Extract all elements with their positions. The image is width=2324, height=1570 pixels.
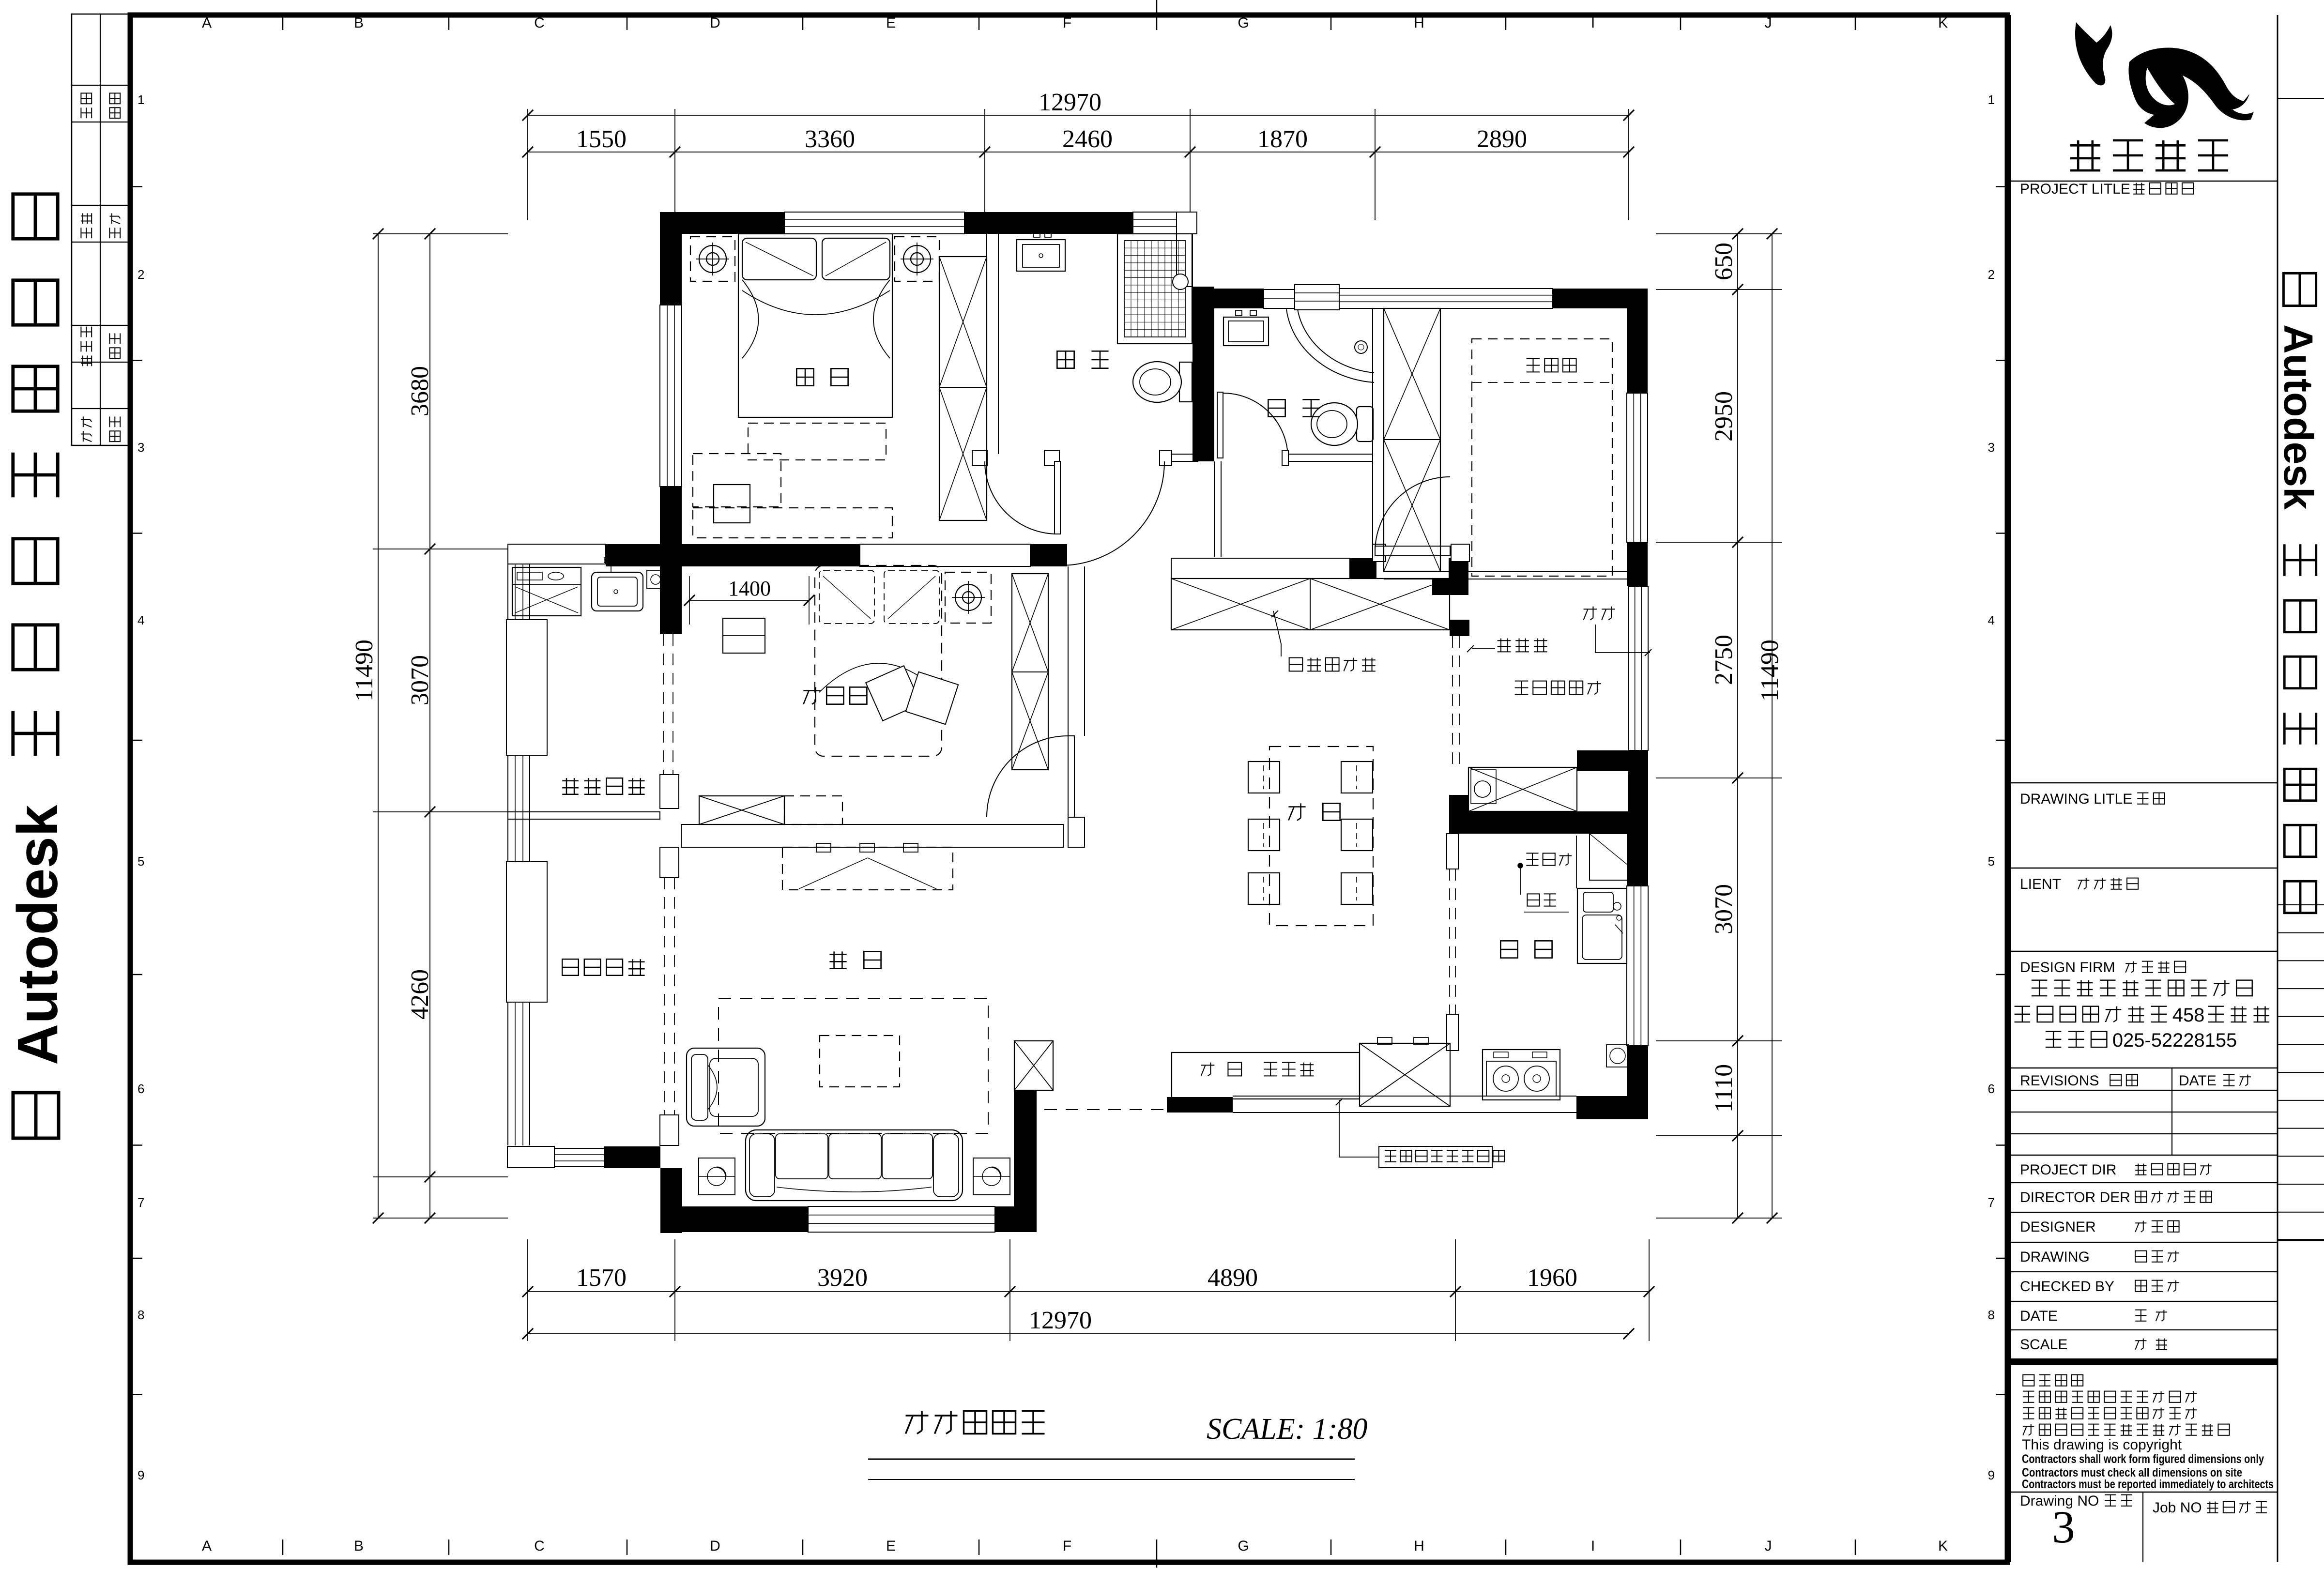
svg-text:1110: 1110 xyxy=(1710,1064,1738,1113)
svg-text:A: A xyxy=(202,15,212,31)
svg-text:Contractors must be reported i: Contractors must be reported immediately… xyxy=(2022,1478,2274,1491)
svg-text:8: 8 xyxy=(138,1308,144,1322)
svg-text:J: J xyxy=(1765,15,1772,31)
svg-text:9: 9 xyxy=(138,1468,144,1482)
svg-text:5: 5 xyxy=(1988,854,1995,869)
svg-text:J: J xyxy=(1765,1538,1772,1554)
svg-text:C: C xyxy=(534,15,545,31)
svg-text:1: 1 xyxy=(1988,92,1995,107)
svg-text:650: 650 xyxy=(1710,243,1738,280)
svg-text:B: B xyxy=(354,1538,364,1554)
svg-text:12970: 12970 xyxy=(1029,1307,1092,1334)
svg-text:Autodesk: Autodesk xyxy=(2276,324,2321,510)
svg-text:This drawing is copyright: This drawing is copyright xyxy=(2022,1437,2182,1453)
svg-text:1570: 1570 xyxy=(576,1264,627,1292)
svg-text:DATE: DATE xyxy=(2020,1308,2058,1324)
svg-text:G: G xyxy=(1238,1538,1249,1554)
svg-text:7: 7 xyxy=(138,1195,144,1210)
svg-text:3360: 3360 xyxy=(805,125,855,153)
svg-text:4260: 4260 xyxy=(406,969,434,1020)
svg-text:PROJECT LITLE: PROJECT LITLE xyxy=(2020,181,2130,197)
svg-text:3680: 3680 xyxy=(406,366,434,416)
svg-text:F: F xyxy=(1063,15,1071,31)
svg-text:DIRECTOR DER: DIRECTOR DER xyxy=(2020,1189,2130,1205)
svg-text:D: D xyxy=(710,1538,720,1554)
svg-text:I: I xyxy=(1591,1538,1595,1554)
svg-text:DATE: DATE xyxy=(2179,1073,2217,1089)
svg-text:E: E xyxy=(886,15,896,31)
svg-text:C: C xyxy=(534,1538,545,1554)
svg-text:1400: 1400 xyxy=(728,577,771,600)
svg-text:DRAWING: DRAWING xyxy=(2020,1249,2090,1265)
svg-text:025-52228155: 025-52228155 xyxy=(2112,1030,2237,1051)
svg-text:LIENT: LIENT xyxy=(2020,876,2061,892)
svg-text:B: B xyxy=(354,15,364,31)
svg-text:PROJECT DIR: PROJECT DIR xyxy=(2020,1162,2116,1178)
svg-text:H: H xyxy=(1414,15,1424,31)
svg-text:1870: 1870 xyxy=(1257,125,1308,153)
svg-text:Contractors shall work form fi: Contractors shall work form figured dime… xyxy=(2022,1452,2264,1466)
svg-text:REVISIONS: REVISIONS xyxy=(2020,1073,2099,1089)
svg-text:3: 3 xyxy=(138,440,144,455)
svg-text:2: 2 xyxy=(138,267,144,282)
svg-text:1: 1 xyxy=(138,92,144,107)
svg-text:3070: 3070 xyxy=(1710,884,1738,934)
svg-text:4890: 4890 xyxy=(1208,1264,1258,1292)
svg-text:K: K xyxy=(1938,1538,1948,1554)
svg-text:5: 5 xyxy=(138,854,144,869)
svg-text:Job NO: Job NO xyxy=(2153,1500,2202,1516)
svg-text:2: 2 xyxy=(1988,267,1995,282)
svg-text:D: D xyxy=(710,15,720,31)
svg-text:DRAWING LITLE: DRAWING LITLE xyxy=(2020,791,2132,807)
svg-text:11490: 11490 xyxy=(1756,640,1784,701)
svg-text:6: 6 xyxy=(138,1082,144,1096)
svg-text:3: 3 xyxy=(2052,1501,2075,1553)
svg-text:2890: 2890 xyxy=(1477,125,1527,153)
svg-text:A: A xyxy=(202,1538,212,1554)
svg-text:12970: 12970 xyxy=(1039,89,1101,116)
svg-text:4: 4 xyxy=(1988,613,1995,627)
svg-text:7: 7 xyxy=(1988,1195,1995,1210)
svg-text:8: 8 xyxy=(1988,1308,1995,1322)
svg-text:3070: 3070 xyxy=(406,655,434,705)
svg-text:1550: 1550 xyxy=(576,125,627,153)
svg-text:458: 458 xyxy=(2172,1005,2205,1026)
svg-text:3920: 3920 xyxy=(817,1264,868,1292)
svg-text:1960: 1960 xyxy=(1527,1264,1577,1292)
svg-text:F: F xyxy=(1063,1538,1071,1554)
svg-text:E: E xyxy=(886,1538,896,1554)
svg-text:11490: 11490 xyxy=(351,640,378,701)
svg-text:G: G xyxy=(1238,15,1249,31)
svg-text:2950: 2950 xyxy=(1710,391,1738,442)
svg-text:DESIGN FIRM: DESIGN FIRM xyxy=(2020,960,2115,976)
svg-text:H: H xyxy=(1414,1538,1424,1554)
svg-text:CHECKED BY: CHECKED BY xyxy=(2020,1279,2114,1295)
svg-text:Autodesk: Autodesk xyxy=(6,805,70,1065)
svg-text:SCALE: 1:80: SCALE: 1:80 xyxy=(1207,1413,1367,1446)
svg-text:4: 4 xyxy=(138,613,144,627)
svg-text:6: 6 xyxy=(1988,1082,1995,1096)
svg-text:2460: 2460 xyxy=(1062,125,1113,153)
svg-text:2750: 2750 xyxy=(1710,635,1738,685)
svg-text:K: K xyxy=(1938,15,1948,31)
svg-text:DESIGNER: DESIGNER xyxy=(2020,1219,2096,1235)
svg-text:3: 3 xyxy=(1988,440,1995,455)
svg-text:9: 9 xyxy=(1988,1468,1995,1482)
svg-text:I: I xyxy=(1591,15,1595,31)
svg-text:SCALE: SCALE xyxy=(2020,1337,2067,1353)
